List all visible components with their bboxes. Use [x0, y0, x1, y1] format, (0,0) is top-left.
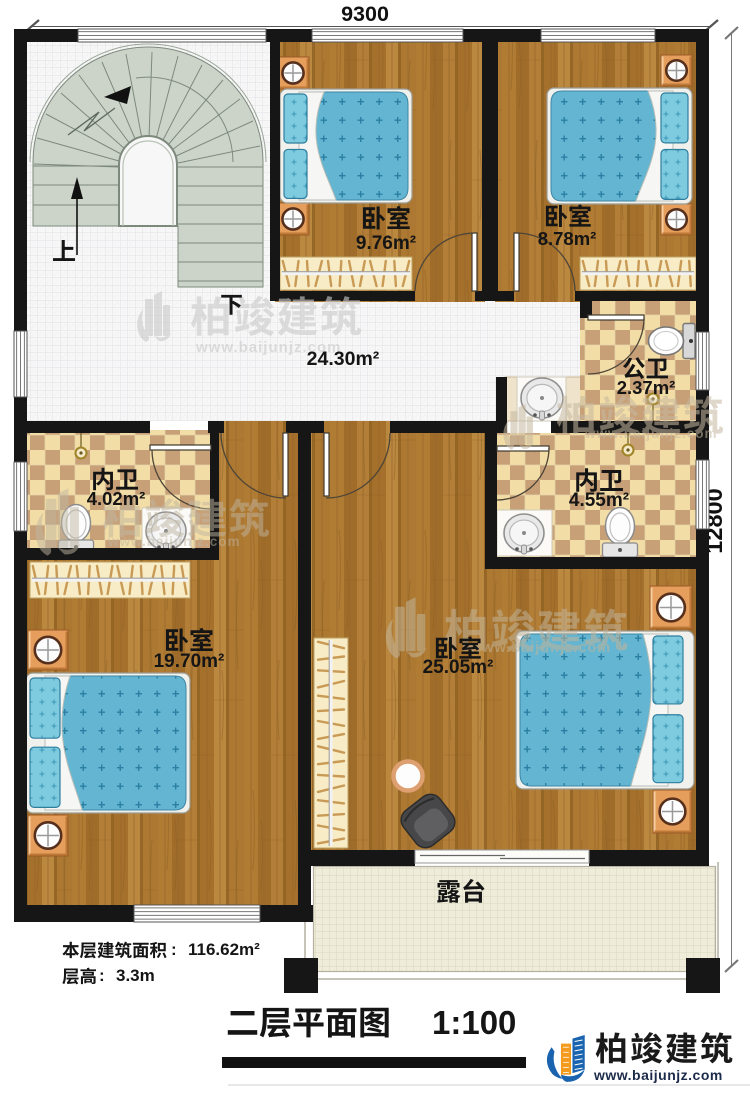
svg-text:24.30m²: 24.30m²: [307, 348, 380, 370]
svg-text:116.62m²: 116.62m²: [188, 940, 260, 959]
svg-text:2.37m²: 2.37m²: [617, 377, 676, 398]
svg-text:www.baijunjz.com: www.baijunjz.com: [107, 534, 241, 549]
svg-text::: :: [99, 966, 105, 985]
svg-text:4.55m²: 4.55m²: [569, 490, 629, 511]
svg-text:9.76m²: 9.76m²: [356, 233, 416, 254]
svg-text:1:100: 1:100: [432, 1004, 516, 1041]
svg-text::: :: [171, 940, 177, 959]
svg-text:4.02m²: 4.02m²: [87, 488, 146, 509]
svg-text:3.3m: 3.3m: [116, 966, 155, 985]
svg-text:9300: 9300: [341, 2, 389, 26]
svg-text:www.baijunjz.com: www.baijunjz.com: [469, 640, 611, 656]
svg-text:8.78m²: 8.78m²: [538, 228, 597, 249]
svg-text:25.05m²: 25.05m²: [423, 657, 494, 678]
svg-text:19.70m²: 19.70m²: [154, 651, 225, 672]
svg-text:www.baijunjz.com: www.baijunjz.com: [584, 426, 718, 441]
svg-text:www.baijunjz.com: www.baijunjz.com: [593, 1067, 723, 1083]
